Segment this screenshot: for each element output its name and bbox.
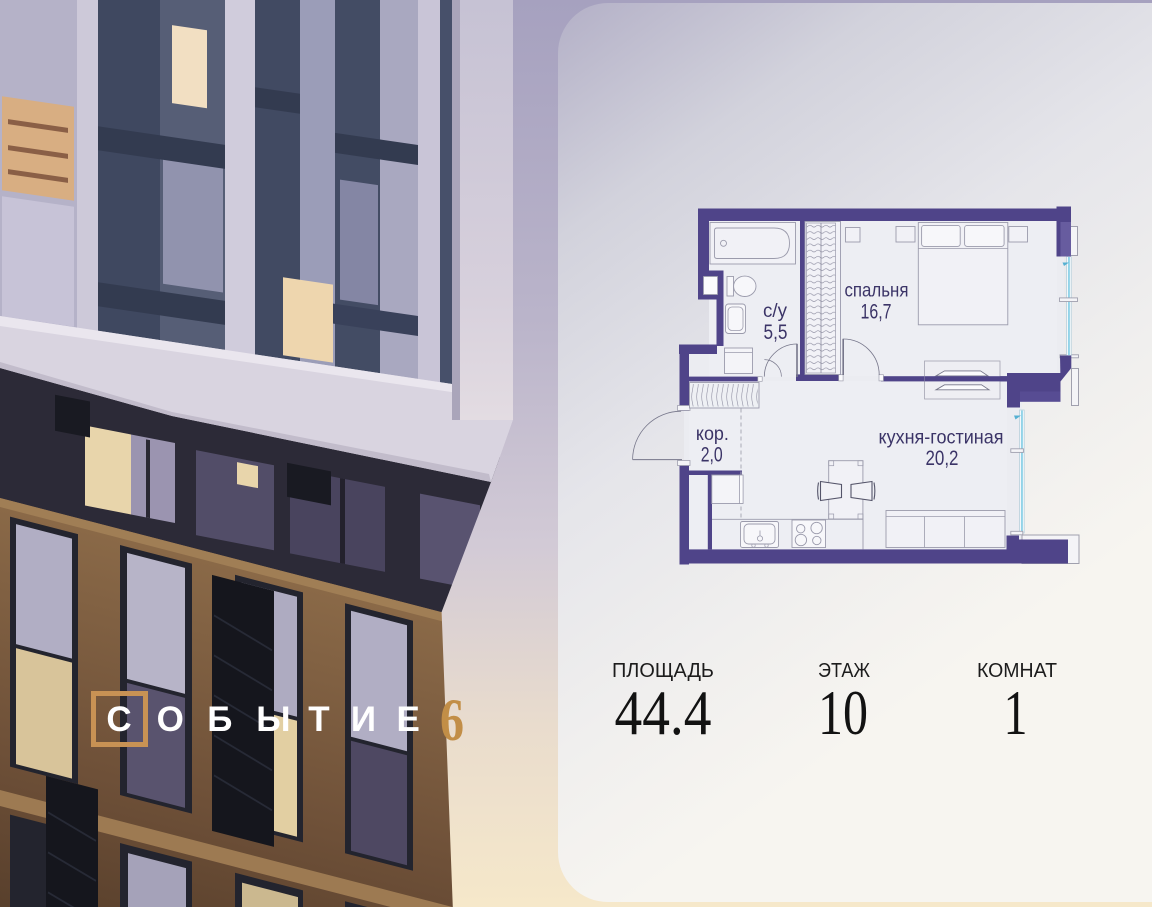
svg-text:2,0: 2,0 xyxy=(701,443,723,467)
svg-text:20,2: 20,2 xyxy=(926,446,959,470)
svg-text:1: 1 xyxy=(1004,678,1028,748)
svg-text:с/у: с/у xyxy=(763,300,787,322)
svg-text:5,5: 5,5 xyxy=(764,320,788,344)
svg-text:спальня: спальня xyxy=(845,280,909,302)
svg-text:10: 10 xyxy=(818,678,868,748)
svg-text:16,7: 16,7 xyxy=(861,300,892,324)
svg-text:44.4: 44.4 xyxy=(615,678,712,748)
svg-text:6: 6 xyxy=(440,687,464,753)
